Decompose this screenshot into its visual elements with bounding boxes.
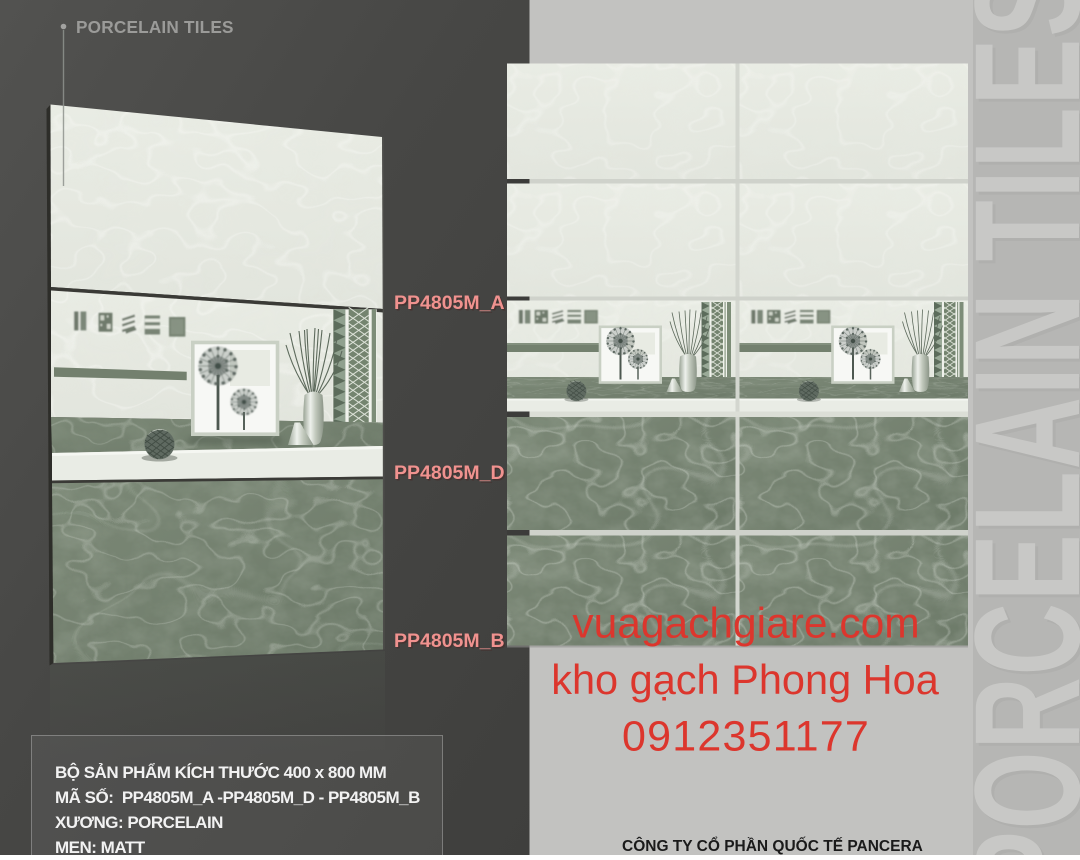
- svg-text:PP4805M_D: PP4805M_D: [394, 462, 505, 484]
- svg-text:BỘ SẢN PHẨM KÍCH THƯỚC 400 x 8: BỘ SẢN PHẨM KÍCH THƯỚC 400 x 800 MM: [55, 763, 387, 782]
- svg-text:MEN: MATT: MEN: MATT: [55, 838, 146, 855]
- svg-text:kho gạch Phong Hoa: kho gạch Phong Hoa: [551, 656, 940, 703]
- svg-text:PP4805M_B: PP4805M_B: [394, 630, 505, 652]
- svg-text:vuagachgiare.com: vuagachgiare.com: [572, 601, 919, 648]
- svg-text:PORCELAIN TILES: PORCELAIN TILES: [76, 17, 234, 37]
- svg-text:CÔNG TY CỔ PHẦN QUỐC TẾ PANCER: CÔNG TY CỔ PHẦN QUỐC TẾ PANCERA: [622, 837, 923, 855]
- svg-text:0912351177: 0912351177: [622, 713, 870, 761]
- svg-text:XƯƠNG: PORCELAIN: XƯƠNG: PORCELAIN: [55, 813, 223, 832]
- svg-text:PP4805M_A: PP4805M_A: [394, 292, 505, 314]
- svg-text:MÃ SỐ: PP4805M_A -PP4805M_D -: MÃ SỐ: PP4805M_A -PP4805M_D - PP4805M_B: [55, 787, 420, 807]
